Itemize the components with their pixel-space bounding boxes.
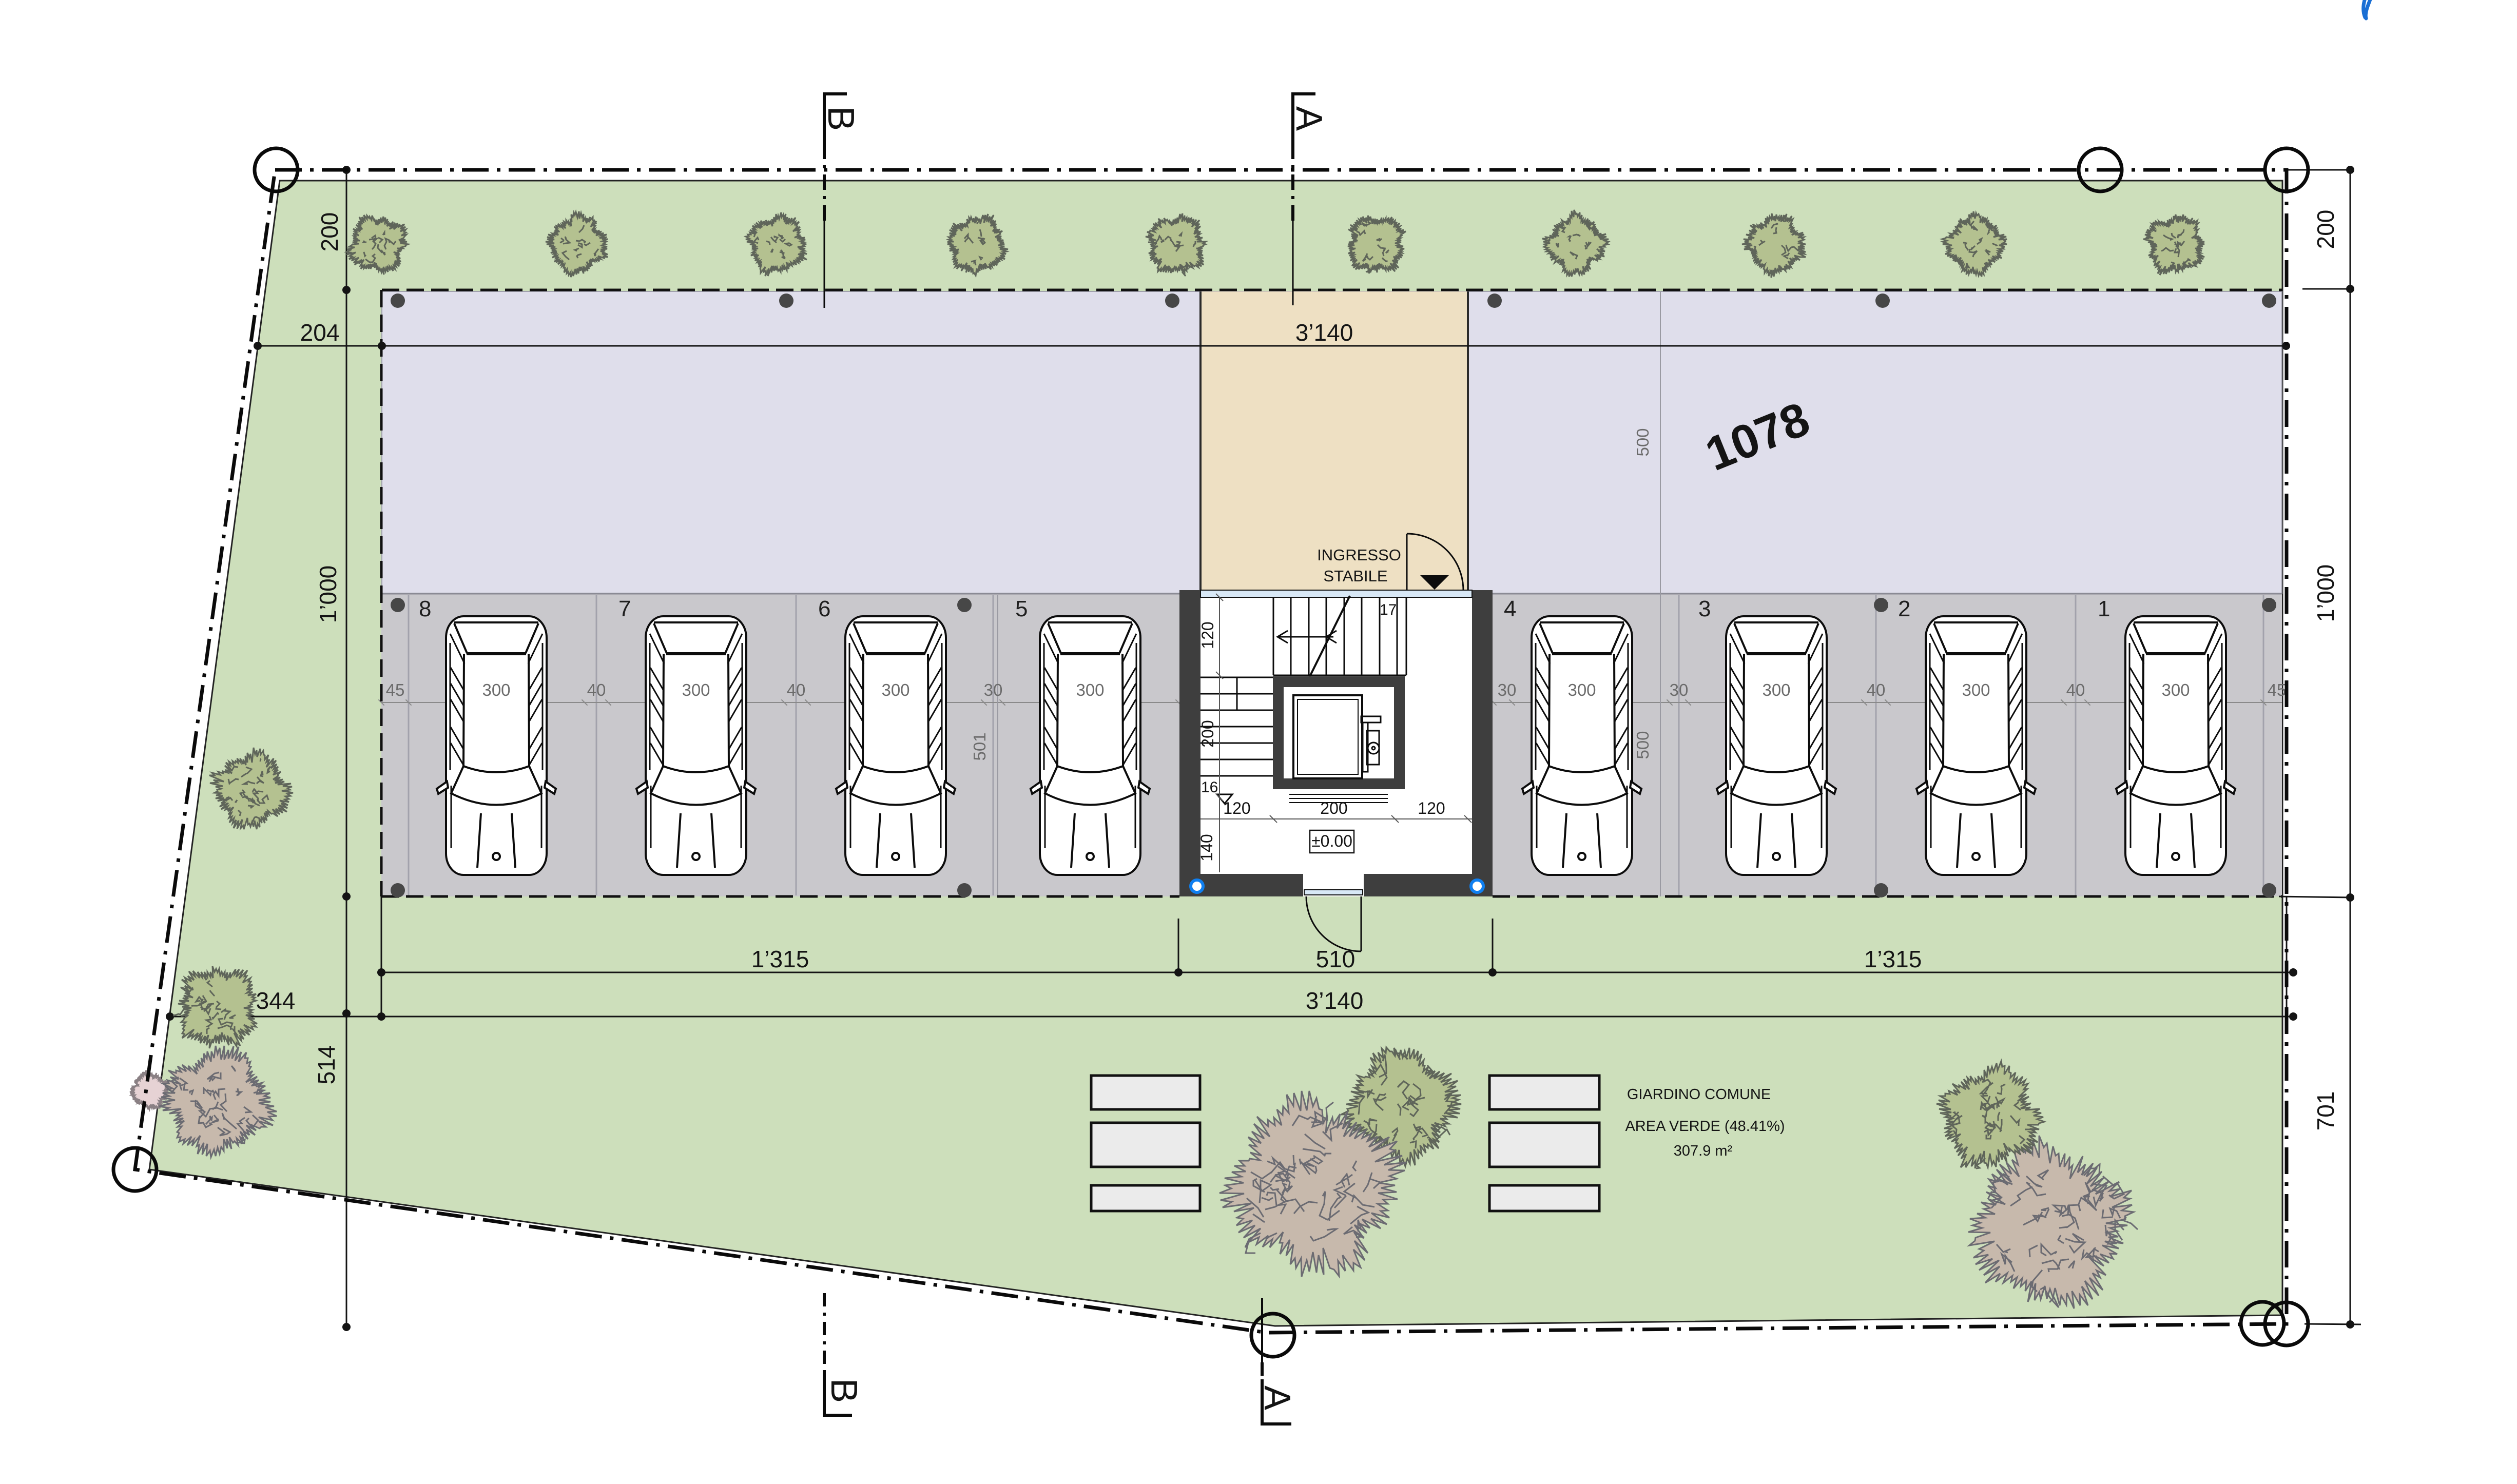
svg-text:AREA VERDE (48.41%): AREA VERDE (48.41%) — [1625, 1118, 1785, 1135]
svg-text:300: 300 — [1762, 680, 1790, 699]
svg-text:A: A — [1288, 106, 1329, 131]
svg-text:200: 200 — [1320, 799, 1347, 817]
svg-text:INGRESSO: INGRESSO — [1317, 546, 1401, 564]
svg-text:7: 7 — [618, 596, 631, 621]
svg-text:200: 200 — [316, 212, 343, 252]
svg-text:300: 300 — [881, 680, 909, 699]
svg-text:1: 1 — [2098, 596, 2110, 621]
svg-text:40: 40 — [787, 680, 806, 699]
svg-text:45: 45 — [386, 680, 405, 699]
svg-text:300: 300 — [1076, 680, 1104, 699]
svg-text:514: 514 — [313, 1045, 340, 1085]
svg-text:30: 30 — [984, 680, 1003, 699]
svg-text:B: B — [820, 106, 861, 131]
svg-text:GIARDINO COMUNE: GIARDINO COMUNE — [1627, 1086, 1771, 1103]
svg-text:3’140: 3’140 — [1295, 319, 1353, 346]
svg-text:8: 8 — [419, 596, 431, 621]
svg-text:4: 4 — [1504, 596, 1516, 621]
svg-text:1’315: 1’315 — [751, 946, 809, 972]
svg-text:45: 45 — [2268, 680, 2287, 699]
svg-text:A: A — [1256, 1385, 1298, 1410]
svg-text:307.9 m²: 307.9 m² — [1674, 1143, 1733, 1159]
svg-text:120: 120 — [1223, 799, 1250, 817]
svg-text:STABILE: STABILE — [1323, 567, 1387, 585]
svg-text:1’315: 1’315 — [1864, 946, 1922, 972]
svg-text:120: 120 — [1418, 799, 1445, 817]
svg-text:200: 200 — [1198, 720, 1217, 747]
svg-text:120: 120 — [1198, 621, 1217, 649]
svg-text:300: 300 — [1962, 680, 1990, 699]
svg-text:±0.00: ±0.00 — [1311, 832, 1352, 850]
svg-text:300: 300 — [482, 680, 510, 699]
svg-text:300: 300 — [2161, 680, 2190, 699]
svg-text:5: 5 — [1015, 596, 1028, 621]
svg-text:30: 30 — [1670, 680, 1689, 699]
svg-text:300: 300 — [1567, 680, 1596, 699]
svg-text:300: 300 — [682, 680, 710, 699]
svg-text:1’000: 1’000 — [2312, 564, 2339, 622]
svg-text:140: 140 — [1197, 834, 1216, 861]
svg-text:500: 500 — [1633, 731, 1652, 759]
svg-text:500: 500 — [1633, 428, 1652, 456]
svg-text:6: 6 — [818, 596, 830, 621]
svg-text:17: 17 — [1380, 601, 1397, 618]
svg-text:16: 16 — [1201, 779, 1218, 796]
svg-text:1’000: 1’000 — [315, 565, 341, 623]
svg-text:2: 2 — [1898, 596, 1910, 621]
svg-text:3: 3 — [1698, 596, 1711, 621]
svg-text:B: B — [823, 1378, 864, 1403]
svg-text:701: 701 — [2312, 1091, 2339, 1131]
svg-text:344: 344 — [256, 987, 296, 1014]
svg-text:40: 40 — [2066, 680, 2085, 699]
svg-text:3’140: 3’140 — [1306, 987, 1364, 1014]
svg-text:40: 40 — [1867, 680, 1886, 699]
svg-text:40: 40 — [587, 680, 606, 699]
svg-text:30: 30 — [1498, 680, 1517, 699]
svg-text:501: 501 — [970, 732, 989, 760]
svg-text:204: 204 — [300, 319, 340, 346]
svg-text:200: 200 — [2312, 210, 2339, 249]
